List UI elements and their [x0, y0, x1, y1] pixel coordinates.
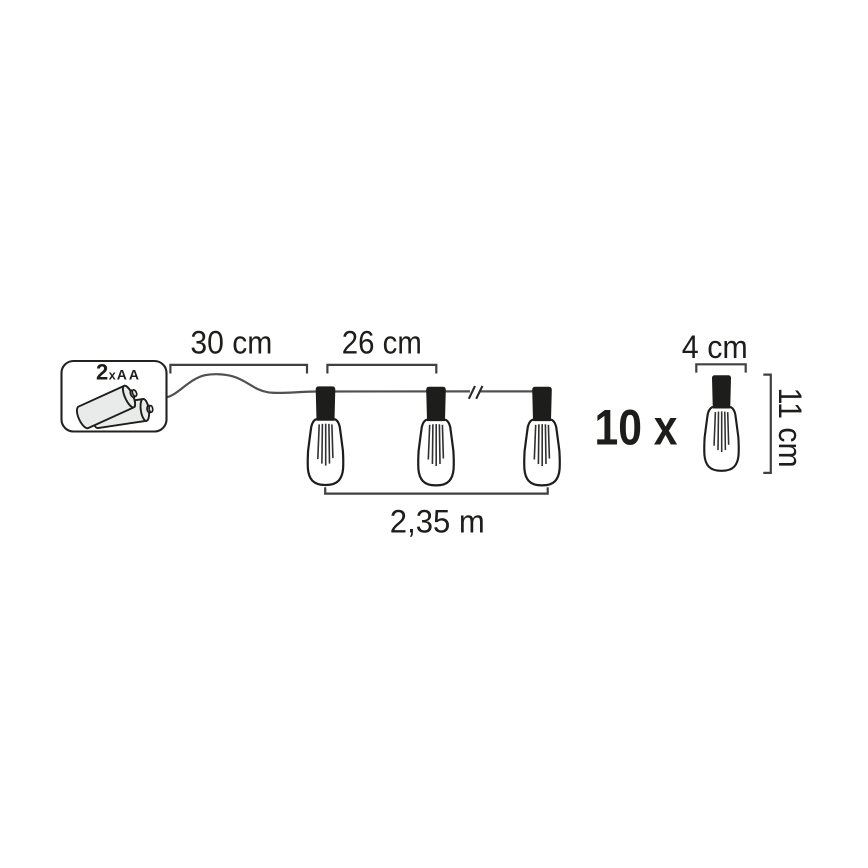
svg-text:2,35 m: 2,35 m: [390, 503, 485, 539]
svg-text:26 cm: 26 cm: [342, 325, 422, 361]
svg-text:11 cm: 11 cm: [772, 388, 808, 468]
svg-text:10 x: 10 x: [595, 400, 678, 456]
svg-text:4 cm: 4 cm: [682, 329, 748, 365]
svg-text:30 cm: 30 cm: [190, 325, 272, 361]
